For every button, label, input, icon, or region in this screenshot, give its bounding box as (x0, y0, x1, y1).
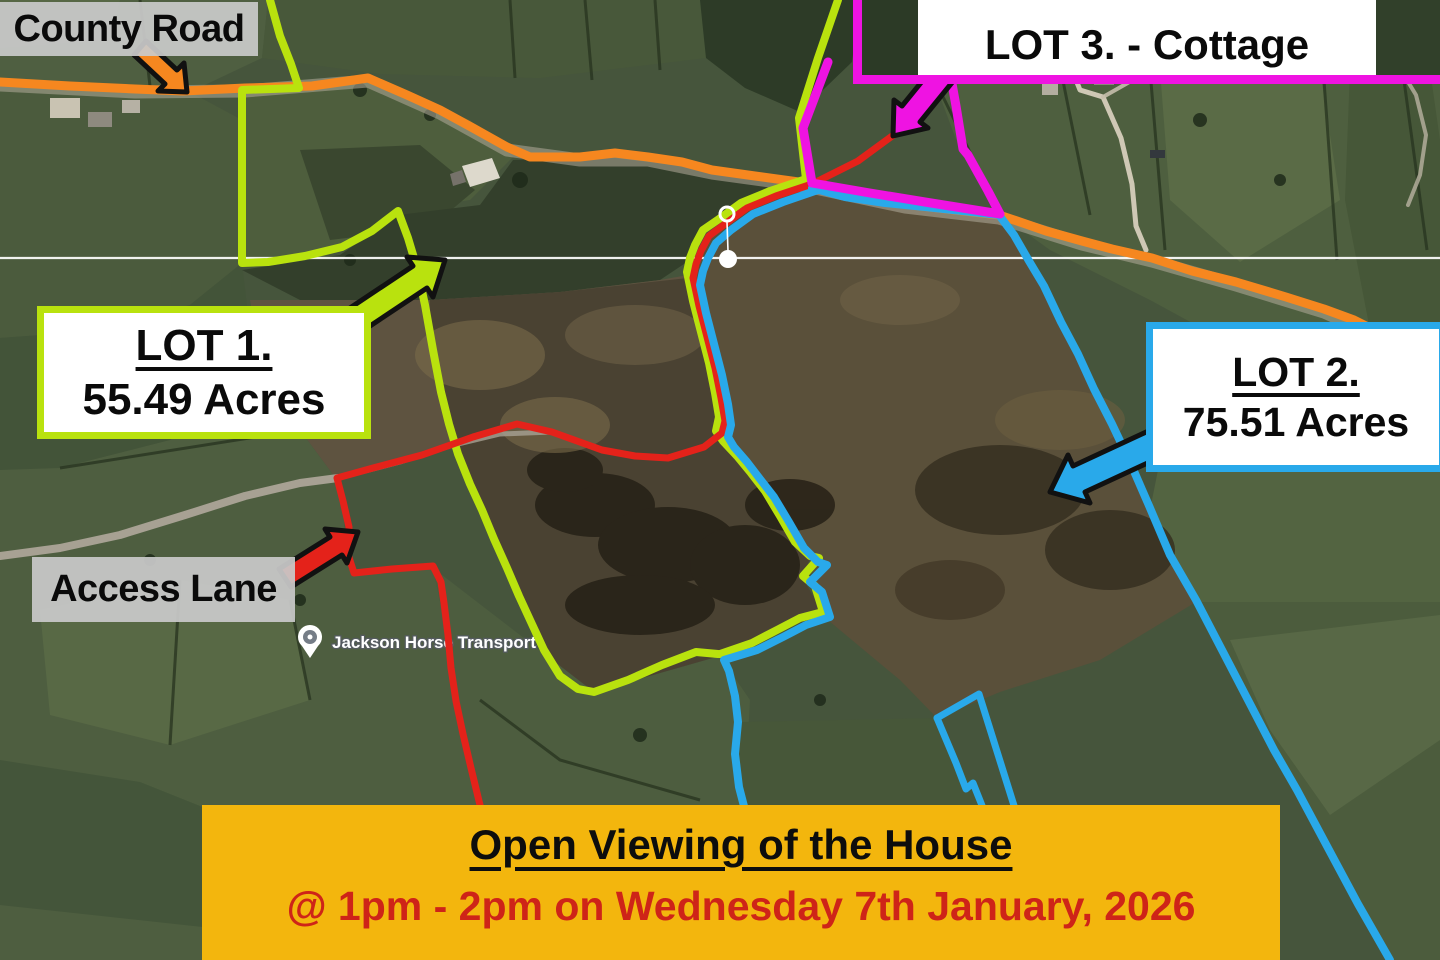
lot1-area: 55.49 Acres (44, 373, 364, 427)
lot2-area: 75.51 Acres (1153, 397, 1439, 447)
poi-label: Jackson Horse Transport (332, 633, 536, 652)
banner-detail: @ 1pm - 2pm on Wednesday 7th January, 20… (202, 883, 1280, 930)
county-road-label: County Road (0, 2, 258, 56)
property-sale-map: Jackson Horse Transport (0, 0, 1440, 960)
lot3-photo-strip-left (862, 0, 918, 75)
county-road-label-text: County Road (14, 8, 245, 51)
access-lane-label-text: Access Lane (50, 568, 277, 611)
lot3-title: LOT 3. - Cottage (918, 0, 1376, 75)
access-lane-label: Access Lane (32, 557, 295, 622)
lot1-callout-box: LOT 1. 55.49 Acres (37, 306, 371, 439)
lot2-title: LOT 2. (1153, 347, 1439, 397)
lot3-photo-strip-right (1376, 0, 1440, 75)
lot1-title: LOT 1. (44, 319, 364, 373)
open-viewing-banner: Open Viewing of the House @ 1pm - 2pm on… (202, 805, 1280, 960)
lot3-callout-box: LOT 3. - Cottage (853, 0, 1440, 84)
lot2-callout-box: LOT 2. 75.51 Acres (1146, 322, 1440, 472)
banner-heading: Open Viewing of the House (202, 821, 1280, 869)
